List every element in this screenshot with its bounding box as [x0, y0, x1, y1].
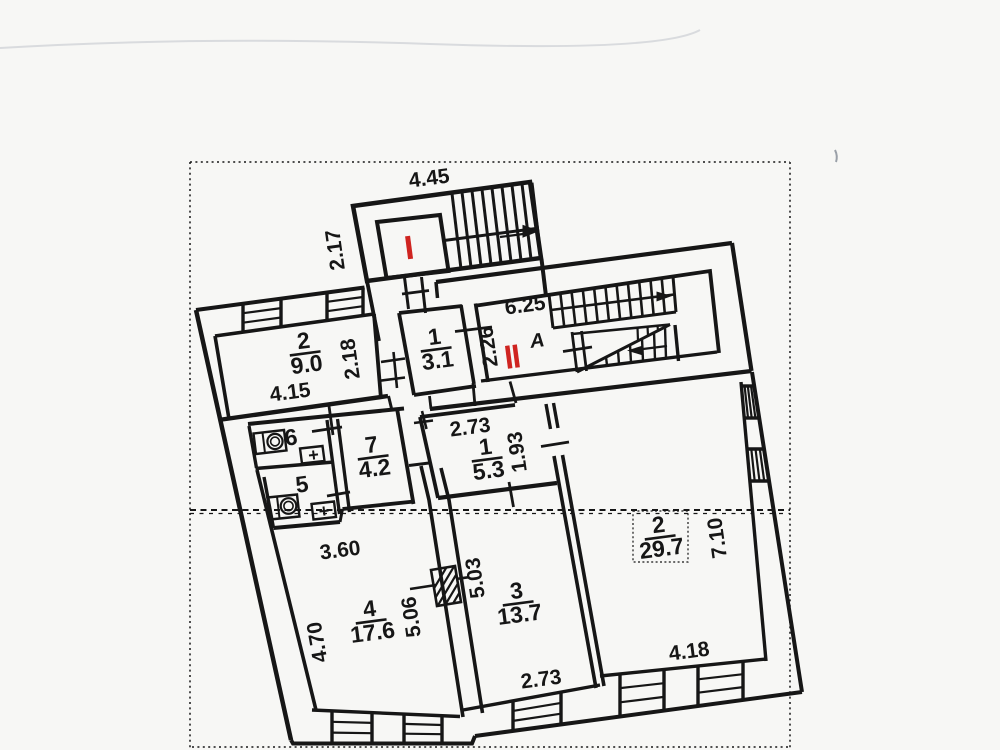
svg-text:13.7: 13.7	[496, 598, 544, 630]
svg-text:4.70: 4.70	[303, 620, 333, 664]
svg-text:3.60: 3.60	[318, 536, 362, 564]
svg-text:2.18: 2.18	[336, 337, 365, 381]
svg-text:7.10: 7.10	[703, 516, 731, 560]
svg-text:5.3: 5.3	[471, 455, 506, 485]
svg-text:17.6: 17.6	[349, 616, 397, 648]
svg-text:9.0: 9.0	[289, 349, 324, 379]
svg-text:2.17: 2.17	[321, 228, 349, 272]
svg-text:29.7: 29.7	[638, 532, 686, 564]
svg-text:2.73: 2.73	[519, 665, 563, 693]
svg-text:A: A	[528, 329, 546, 353]
svg-text:4.15: 4.15	[268, 378, 312, 406]
svg-text:3.1: 3.1	[420, 345, 455, 375]
svg-text:1.93: 1.93	[503, 430, 531, 474]
svg-text:4.45: 4.45	[407, 164, 451, 192]
svg-text:5.03: 5.03	[461, 556, 489, 600]
svg-text:6: 6	[283, 423, 299, 450]
svg-text:5.06: 5.06	[397, 595, 425, 639]
svg-text:2.26: 2.26	[474, 325, 502, 369]
svg-text:4.18: 4.18	[667, 637, 711, 665]
svg-text:6.25: 6.25	[503, 291, 547, 319]
svg-text:4.2: 4.2	[357, 453, 392, 483]
